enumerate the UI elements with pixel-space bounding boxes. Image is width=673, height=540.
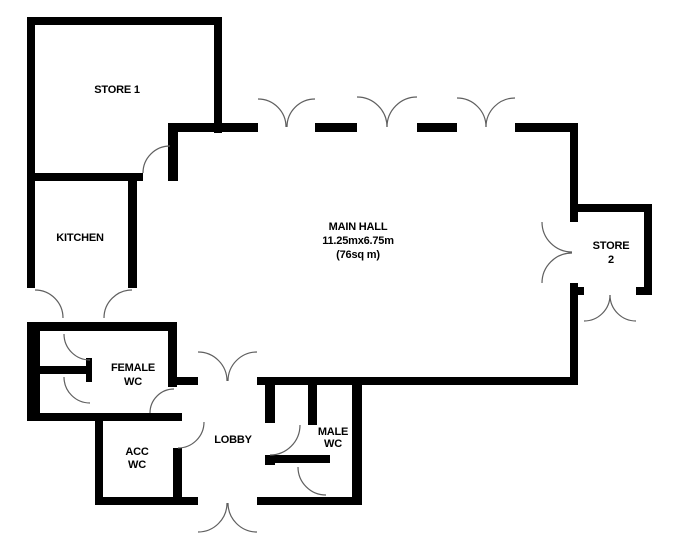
floor-plan-canvas bbox=[0, 0, 673, 540]
room-label-main-hall-name: MAIN HALL bbox=[322, 220, 394, 234]
room-label-store-2-number: 2 bbox=[593, 253, 630, 267]
wall-store2-right bbox=[644, 204, 652, 295]
door-arc-malewc-cubicle bbox=[298, 467, 326, 495]
room-label-kitchen-text: KITCHEN bbox=[56, 231, 104, 245]
room-label-main-hall-area: (76sq m) bbox=[322, 248, 394, 262]
door-arc-lobby-bottom-left bbox=[198, 503, 227, 532]
door-arc-malewc bbox=[270, 425, 300, 455]
wall-store2-bottom-right bbox=[636, 287, 652, 295]
room-label-female-wc-line2: WC bbox=[111, 375, 155, 389]
door-arc-femalewc-cubicle1 bbox=[64, 334, 90, 360]
door-arc-store2-side-bottom bbox=[542, 253, 572, 283]
wall-hall-bottom-right bbox=[257, 377, 578, 385]
wall-hall-right-lower bbox=[570, 283, 578, 385]
wall-store1-top bbox=[27, 17, 222, 25]
wall-hall-top-c bbox=[417, 123, 457, 132]
door-arc-store1 bbox=[143, 146, 170, 173]
door-arc-store2-side-top bbox=[542, 222, 572, 252]
room-label-store-1: STORE 1 bbox=[94, 83, 139, 97]
door-arc-lobby-top-left bbox=[198, 352, 227, 381]
door-arc-store2-bottom-right bbox=[610, 295, 636, 321]
wall-store1-bottom bbox=[27, 173, 143, 181]
room-label-lobby: LOBBY bbox=[214, 433, 252, 447]
wall-accwc-right bbox=[173, 448, 182, 505]
wall-lobby-malewc-upper bbox=[265, 385, 275, 423]
room-label-main-hall: MAIN HALL 11.25mx6.75m (76sq m) bbox=[322, 220, 394, 262]
wall-accwc-left bbox=[95, 421, 103, 505]
wall-hall-top-b bbox=[315, 123, 357, 132]
door-arc-lobby-top-right bbox=[228, 352, 257, 381]
door-arc-kitchen-west bbox=[35, 290, 63, 318]
door-arc-accwc bbox=[178, 422, 204, 448]
door-arc-hall-top1-right bbox=[287, 99, 315, 127]
floor-plan: STORE 1 KITCHEN MAIN HALL 11.25mx6.75m (… bbox=[0, 0, 673, 540]
room-label-acc-wc-line2: WC bbox=[125, 459, 148, 472]
room-label-store-1-text: STORE 1 bbox=[94, 83, 139, 97]
wall-hall-top-d bbox=[515, 123, 578, 132]
room-label-male-wc: MALE WC bbox=[318, 426, 348, 450]
room-label-acc-wc: ACC WC bbox=[125, 446, 148, 472]
wall-store2-bottom-left bbox=[570, 287, 584, 295]
room-label-male-wc-line2: WC bbox=[318, 438, 348, 450]
wall-femalewc-right bbox=[168, 322, 177, 387]
room-label-store-2-text: STORE bbox=[593, 239, 630, 253]
room-label-female-wc: FEMALE WC bbox=[111, 361, 155, 389]
wall-malewc-stub bbox=[308, 385, 317, 425]
room-label-male-wc-line1: MALE bbox=[318, 426, 348, 438]
wall-malewc-right bbox=[352, 385, 362, 505]
wall-hall-top-a bbox=[168, 123, 258, 132]
door-arc-kitchen-east bbox=[104, 290, 132, 318]
door-arc-hall-top2-left bbox=[357, 97, 387, 127]
door-arc-hall-top3-right bbox=[486, 98, 515, 127]
wall-cubicle-partition bbox=[27, 366, 92, 374]
wall-south-block-bottom-right bbox=[257, 497, 362, 505]
wall-store1-right bbox=[214, 17, 222, 133]
room-label-store-2: STORE 2 bbox=[593, 239, 630, 267]
wall-store2-top bbox=[570, 204, 652, 212]
wall-south-block-bottom-left bbox=[95, 497, 198, 505]
door-arc-hall-top3-left bbox=[457, 98, 486, 127]
wall-femalewc-bottom bbox=[27, 413, 182, 421]
door-arc-femalewc bbox=[150, 389, 174, 413]
room-label-acc-wc-line1: ACC bbox=[125, 446, 148, 459]
room-label-lobby-text: LOBBY bbox=[214, 433, 252, 447]
door-arc-store2-bottom-left bbox=[584, 295, 610, 321]
wall-malewc-cubicle-top bbox=[265, 455, 330, 463]
room-label-main-hall-dimensions: 11.25mx6.75m bbox=[322, 234, 394, 248]
wall-wc-top bbox=[27, 322, 177, 331]
wall-west-upper bbox=[27, 17, 35, 288]
room-label-female-wc-line1: FEMALE bbox=[111, 361, 155, 375]
wall-cubicle-partition-cap bbox=[86, 358, 92, 382]
door-arc-hall-top1-left bbox=[258, 99, 286, 127]
door-arc-lobby-bottom-right bbox=[228, 503, 257, 532]
room-label-kitchen: KITCHEN bbox=[56, 231, 104, 245]
wall-kitchen-right bbox=[128, 173, 137, 288]
door-arc-hall-top2-right bbox=[387, 97, 417, 127]
